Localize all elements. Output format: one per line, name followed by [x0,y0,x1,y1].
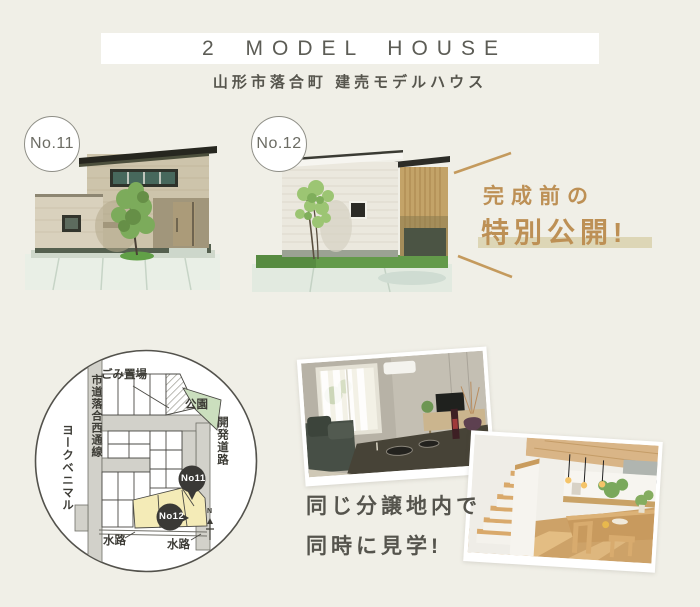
page-subtitle: 山形市落合町 建売モデルハウス [0,71,700,92]
promo-slash-top-icon [450,149,516,177]
header-banner: 2 MODEL HOUSE [101,33,599,64]
house-no12-badge: No.12 [251,116,307,172]
map-label-road-right: 開発道路 [214,416,230,466]
living-room-illustration [301,351,491,477]
promo-line2: 特別公開! [481,211,627,251]
house-no11-badge-label: No.11 [30,135,74,153]
promo-line1: 完成前の [483,180,595,210]
promo-slash-bottom-icon [454,252,520,282]
map-label-waterway-left: 水路 [103,532,126,548]
flyer-page: 2 MODEL HOUSE 山形市落合町 建売モデルハウス [0,0,700,607]
viewing-line2: 同時に見学! [306,527,481,567]
viewing-caption: 同じ分譲地内で 同時に見学! [306,487,481,567]
interior-photo-living [297,347,495,487]
viewing-line1: 同じ分譲地内で [306,487,481,527]
map-marker-no11: No11 [181,473,206,484]
map-north-label: N [207,508,212,515]
map-label-waterway-right: 水路 [167,536,190,552]
map-marker-no12: No12 [159,511,184,522]
map-label-store: ヨークベニマル [59,424,75,512]
map-label-road-left: 市道落合西通線 [88,374,104,458]
map-label-park: 公園 [185,396,208,412]
site-map: ごみ置場 公園 市道落合西通線 ヨークベニマル 開発道路 水路 水路 No11 … [33,348,259,574]
page-title: 2 MODEL HOUSE [193,37,507,61]
house-no12-badge-label: No.12 [256,135,301,153]
map-label-garbage: ごみ置場 [101,366,147,382]
dining-room-illustration [468,434,659,563]
interior-photo-dining [463,430,663,572]
house-no11-badge: No.11 [24,116,80,172]
